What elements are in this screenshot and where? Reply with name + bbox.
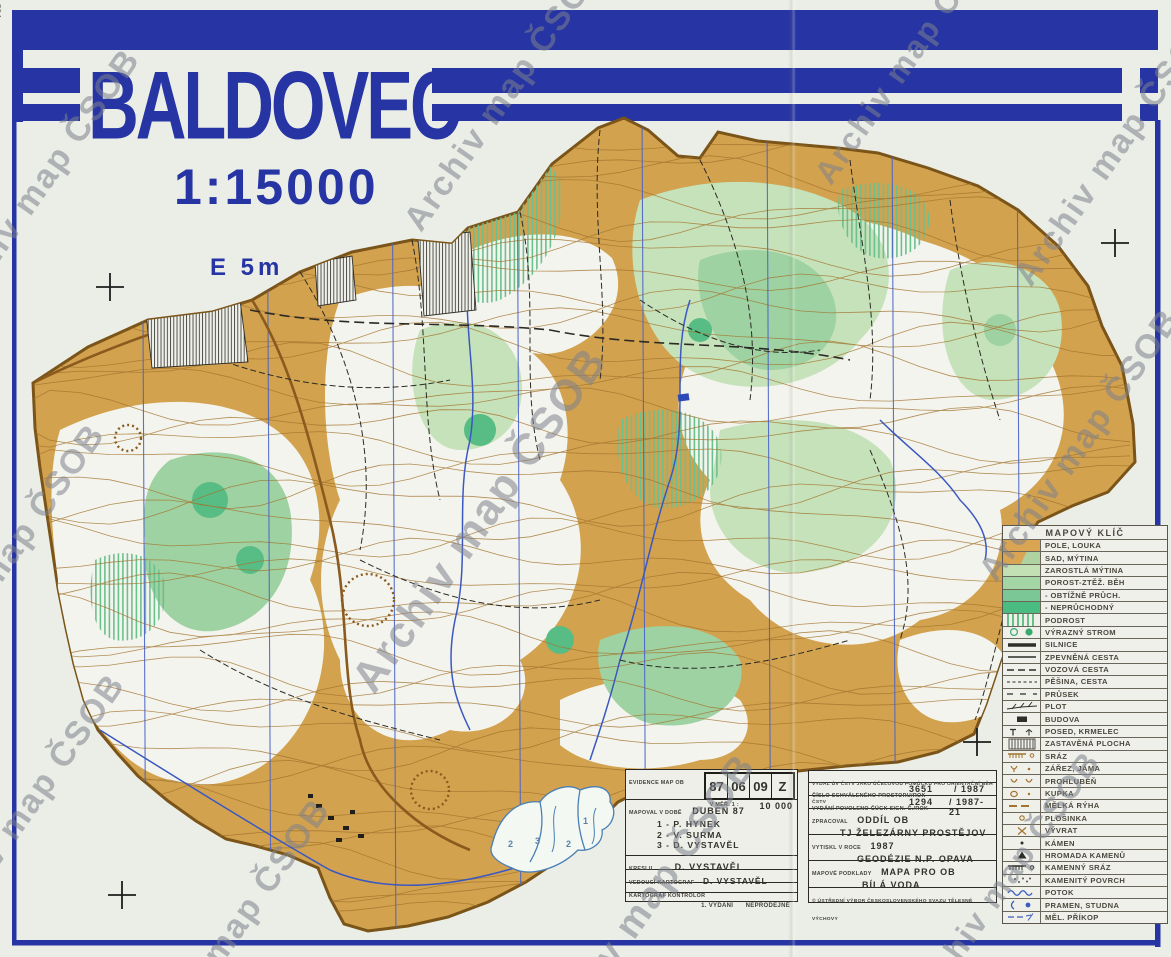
approved-row: ČÍSLO SCHVÁLENÉHO PROSTORU/ROK 3651 / 19… [809,783,996,796]
legend-symbol [1003,775,1041,786]
legend-row: PRAMEN, STUDNA [1003,898,1167,910]
legend-label: PLOT [1041,702,1067,711]
legend-symbol [1003,552,1041,563]
legend-row: POTOK [1003,886,1167,898]
legend-symbol [1003,875,1041,886]
legend-row: KÁMEN [1003,836,1167,848]
legend-row: ZPEVNĚNÁ CESTA [1003,651,1167,663]
legend-symbol [1003,614,1041,625]
evidence-box: EVIDENCE MAP OB 870609Z MAPOVAL V DOBĚ D… [625,769,798,902]
legend-label: PROHLUBEŇ [1041,777,1097,786]
legend-symbol [1003,850,1041,861]
legend-symbol [1003,701,1041,712]
legend-symbol [1003,652,1041,663]
legend-symbol [1003,899,1041,910]
legend-symbol [1003,738,1041,749]
legend-label: PRŮSEK [1041,690,1079,699]
zpracoval-line1: ODDÍL OB [857,815,909,825]
map-scale: 1:15000 [174,158,539,216]
edition-label: 1. VYDÁNÍ [701,903,733,909]
legend-row: KUPKA [1003,787,1167,799]
sources-caption: MAPOVÉ PODKLADY [812,871,872,877]
legend-label: MĚL. PŘÍKOP [1041,913,1099,922]
legend-label: POLE, LOUKA [1041,541,1101,550]
sources-line1: MAPA PRO OB [881,867,956,877]
legend-row: PLOŠINKA [1003,812,1167,824]
legend-label: MĚLKÁ RÝHA [1041,801,1100,810]
legend-label: BUDOVA [1041,715,1080,724]
map-code-cell: 06 [727,774,749,798]
legend-label: PODROST [1041,616,1085,625]
legend-label: PRAMEN, STUDNA [1041,901,1119,910]
edition-row: 1. VYDÁNÍ NEPRODEJNÉ [626,893,797,906]
legend-label: POSED, KRMELEC [1041,727,1119,736]
legend-label: POROST-ZTĚŽ. BĚH [1041,578,1125,587]
legend-symbol [1003,664,1041,675]
legend-row: POSED, KRMELEC [1003,725,1167,737]
legend-symbol [1003,689,1041,700]
legend-label: HROMADA KAMENŮ [1041,851,1125,860]
legend-header: MAPOVÝ KLÍČ [1003,526,1167,539]
legend-label: SAD, MÝTINA [1041,554,1099,563]
legend-symbol [1003,800,1041,811]
index-map-number: 1 [583,816,588,826]
issued-row: VYDAL ÚV ČSTV JAKO ÚČELOVOU POMŮCKU PRO … [809,771,996,783]
printed-row: VYTISKL V ROCE 1987 GEODÉZIE N.P. OPAVA [809,835,996,861]
legend-row: SILNICE [1003,638,1167,650]
controller-row: KARTOGRAF KONTROLOR [626,883,797,893]
legend-row: - OBTÍŽNĚ PRŮCH. [1003,589,1167,601]
legend-row: HROMADA KAMENŮ [1003,849,1167,861]
mappers-list: 1 - P. HYNEK2 - V. SURMA3 - D. VYSTAVĚL [629,819,794,851]
legend-row: PRŮSEK [1003,688,1167,700]
map-code-cell: 87 [706,774,727,798]
mapper-entry: 2 - V. SURMA [657,830,794,841]
legend-symbol [1003,751,1041,762]
legend-row: VOZOVÁ CESTA [1003,663,1167,675]
legend-row: KAMENITÝ POVRCH [1003,874,1167,886]
permit-row: VYDÁNÍ POVOLENO ČÚGK SIGN. Č./ROK 1294 /… [809,796,996,809]
legend-label: VÝVRAT [1041,826,1078,835]
legend-label: ZAROSTLÁ MÝTINA [1041,566,1124,575]
legend-row: PODROST [1003,613,1167,625]
copyright-row: © ÚSTŘEDNÍ VÝBOR ČESKOSLOVENSKÉHO SVAZU … [809,888,996,900]
legend-row: SRÁZ [1003,750,1167,762]
printed-caption: VYTISKL V ROCE [812,845,861,851]
legend-row: ZÁŘEZ, JÁMA [1003,762,1167,774]
legend-label: KAMENITÝ POVRCH [1041,876,1125,885]
legend-symbol [1003,577,1041,588]
legend-row: ZAROSTLÁ MÝTINA [1003,564,1167,576]
legend-row: KAMENNÝ SRÁZ [1003,861,1167,873]
publisher-box: VYDAL ÚV ČSTV JAKO ÚČELOVOU POMŮCKU PRO … [808,770,997,903]
legend-row: PROHLUBEŇ [1003,774,1167,786]
legend-row: - NEPRŮCHODNÝ [1003,601,1167,613]
legend-label: SILNICE [1041,640,1078,649]
legend-label: KUPKA [1041,789,1074,798]
map-sheet: BALDOVEC 1:15000 E 5m 784 MAPOVÝ KLÍČ PO… [0,0,1171,957]
zpracoval-caption: ZPRACOVAL [812,819,848,825]
legend-symbol [1003,788,1041,799]
legend: MAPOVÝ KLÍČ POLE, LOUKASAD, MÝTINAZAROST… [1002,525,1168,924]
legend-label: ZÁŘEZ, JÁMA [1041,764,1100,773]
legend-row: MĚLKÁ RÝHA [1003,799,1167,811]
index-map-number: 2 [566,839,571,849]
legend-row: SAD, MÝTINA [1003,551,1167,563]
legend-symbol [1003,676,1041,687]
mapper-entry: 3 - D. VYSTAVĚL [657,840,794,851]
registration-cross [1101,229,1129,257]
legend-symbol [1003,837,1041,848]
legend-label: - OBTÍŽNĚ PRŮCH. [1041,591,1121,600]
chief-row: VEDOUCÍ KARTOGRAF D. VYSTAVĚL [626,870,797,883]
registration-cross [108,881,136,909]
legend-symbol [1003,602,1041,613]
approved-number: 3651 [909,784,933,794]
zpracoval-row: ZPRACOVAL ODDÍL OB TJ ŽELEZÁRNY PROSTĚJO… [809,809,996,835]
evidence-caption: EVIDENCE MAP OB [629,780,684,786]
map-code-cell: 09 [749,774,771,798]
legend-label: VOZOVÁ CESTA [1041,665,1109,674]
map-code-cell: Z [771,774,793,798]
evidence-mapoval-row: MAPOVAL V DOBĚ DUBEN 87 V MĚŘ. 1 : 10 00… [626,800,797,856]
legend-row: VÝVRAT [1003,824,1167,836]
legend-label: PĚŠINA, CESTA [1041,677,1108,686]
legend-symbol [1003,862,1041,873]
legend-rows: POLE, LOUKASAD, MÝTINAZAROSTLÁ MÝTINAPOR… [1003,539,1167,923]
legend-symbol [1003,813,1041,824]
legend-row: VÝRAZNÝ STROM [1003,626,1167,638]
corner-mark: 784 [0,4,1,19]
legend-symbol [1003,825,1041,836]
equidistance-label: E 5m [210,254,539,282]
legend-row: BUDOVA [1003,712,1167,724]
legend-label: ZASTAVĚNÁ PLOCHA [1041,739,1131,748]
legend-symbol [1003,565,1041,576]
evidence-header-row: EVIDENCE MAP OB 870609Z [626,770,797,800]
index-map-number: 2 [508,839,513,849]
mapoval-caption: MAPOVAL V DOBĚ [629,810,682,816]
mapper-entry: 1 - P. HYNEK [657,819,794,830]
printed-line1: 1987 [870,841,894,851]
legend-row: PĚŠINA, CESTA [1003,675,1167,687]
legend-label: KAMENNÝ SRÁZ [1041,863,1111,872]
legend-symbol [1003,763,1041,774]
legend-symbol [1003,887,1041,898]
edition-note: NEPRODEJNÉ [746,903,790,909]
permit-number: 1294 [909,797,933,807]
legend-label: - NEPRŮCHODNÝ [1041,603,1114,612]
legend-row: POROST-ZTĚŽ. BĚH [1003,576,1167,588]
legend-symbol [1003,912,1041,923]
scale-value: 10 000 [759,801,793,811]
legend-label: KÁMEN [1041,839,1075,848]
legend-symbol [1003,540,1041,551]
legend-symbol [1003,627,1041,638]
kreslil-row: KRESLIL D. VYSTAVĚL [626,856,797,870]
scale-caption: V MĚŘ. 1 : [710,802,739,808]
map-code-cells: 870609Z [704,772,795,800]
approved-year: / 1987 [954,784,985,794]
legend-row: MĚL. PŘÍKOP [1003,911,1167,923]
legend-label: ZPEVNĚNÁ CESTA [1041,653,1119,662]
legend-label: PLOŠINKA [1041,814,1087,823]
index-map-number: 3 [535,836,540,846]
legend-symbol [1003,590,1041,601]
legend-row: ZASTAVĚNÁ PLOCHA [1003,737,1167,749]
legend-label: POTOK [1041,888,1074,897]
sources-row: MAPOVÉ PODKLADY MAPA PRO OB BÍLÁ VODA [809,861,996,888]
legend-label: SRÁZ [1041,752,1067,761]
legend-row: POLE, LOUKA [1003,539,1167,551]
legend-symbol [1003,713,1041,724]
title-block: BALDOVEC 1:15000 E 5m [88,58,539,282]
legend-row: PLOT [1003,700,1167,712]
legend-label: VÝRAZNÝ STROM [1041,628,1116,637]
legend-symbol [1003,639,1041,650]
map-title: BALDOVEC [88,58,457,154]
legend-symbol [1003,726,1041,737]
